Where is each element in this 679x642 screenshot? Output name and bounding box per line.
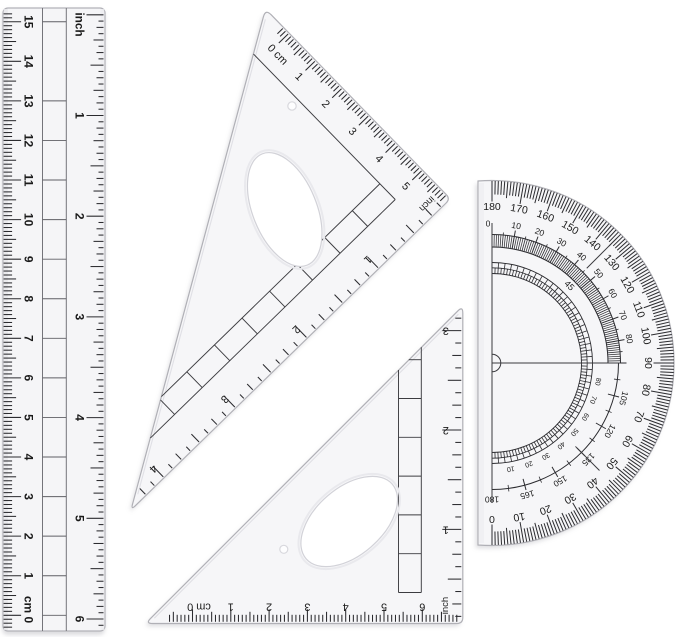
- svg-text:1: 1: [73, 112, 87, 119]
- svg-text:9: 9: [22, 256, 36, 263]
- svg-text:1: 1: [22, 572, 36, 579]
- svg-text:inch: inch: [440, 597, 451, 614]
- svg-text:80: 80: [639, 383, 653, 397]
- svg-text:inch: inch: [73, 12, 87, 36]
- svg-text:90: 90: [642, 357, 654, 369]
- svg-text:2: 2: [22, 533, 36, 540]
- svg-text:2: 2: [73, 213, 87, 220]
- svg-text:3: 3: [22, 493, 36, 500]
- svg-text:7: 7: [22, 335, 36, 342]
- svg-text:6: 6: [73, 616, 87, 623]
- svg-text:3: 3: [443, 325, 449, 337]
- svg-text:3: 3: [73, 314, 87, 321]
- svg-text:10: 10: [511, 220, 522, 232]
- svg-text:10: 10: [22, 213, 36, 227]
- svg-text:12: 12: [22, 134, 36, 148]
- svg-text:2: 2: [443, 424, 449, 436]
- svg-text:5: 5: [73, 515, 87, 522]
- svg-text:6: 6: [22, 375, 36, 382]
- svg-text:2: 2: [266, 601, 272, 613]
- svg-text:14: 14: [22, 55, 36, 69]
- svg-text:1: 1: [443, 523, 449, 535]
- svg-text:180: 180: [483, 201, 501, 213]
- svg-text:80: 80: [624, 333, 636, 344]
- svg-text:0: 0: [489, 513, 495, 525]
- svg-text:80: 80: [593, 377, 601, 386]
- svg-text:4: 4: [22, 454, 36, 461]
- svg-text:3: 3: [304, 601, 310, 613]
- svg-text:10: 10: [512, 510, 526, 524]
- svg-text:1: 1: [228, 601, 234, 613]
- svg-text:cm 0: cm 0: [22, 596, 36, 624]
- svg-text:10: 10: [506, 464, 515, 472]
- svg-text:5: 5: [22, 414, 36, 421]
- svg-text:0: 0: [486, 219, 491, 229]
- svg-text:15: 15: [22, 15, 36, 29]
- svg-text:8: 8: [22, 295, 36, 302]
- svg-text:4: 4: [343, 601, 349, 613]
- svg-text:5: 5: [381, 601, 387, 613]
- svg-text:13: 13: [22, 94, 36, 108]
- svg-text:4: 4: [73, 414, 87, 421]
- svg-text:cm 0: cm 0: [187, 601, 211, 613]
- svg-text:11: 11: [22, 174, 36, 187]
- svg-text:6: 6: [419, 601, 425, 613]
